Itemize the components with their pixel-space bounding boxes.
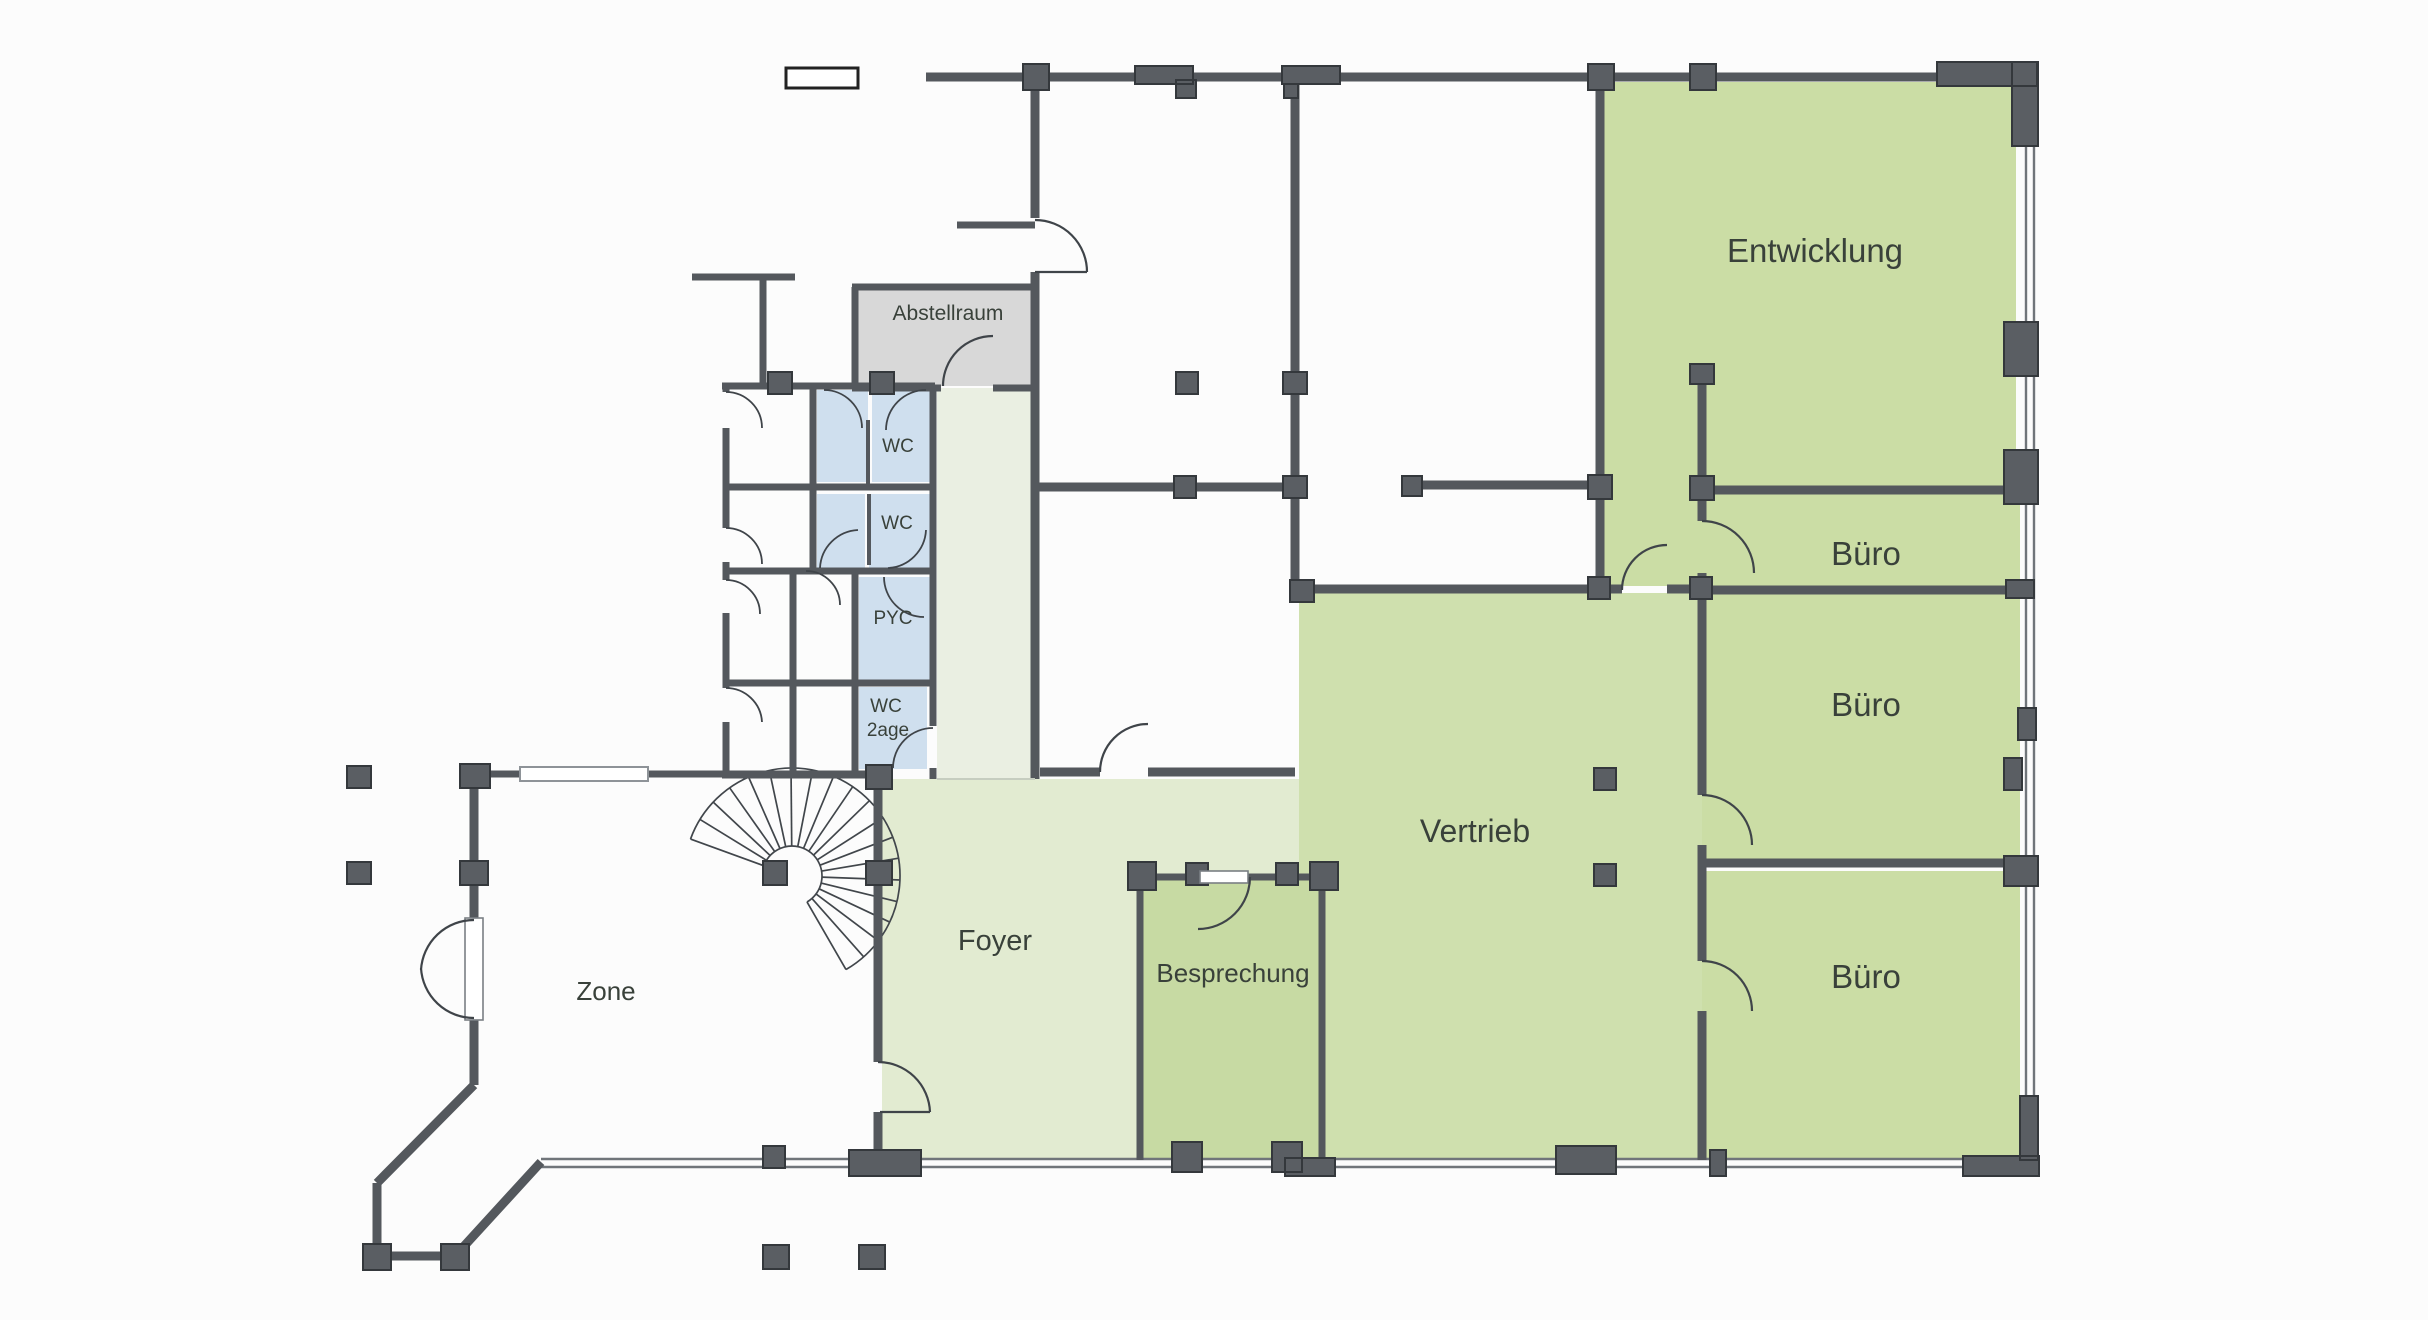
label-entwicklung: Entwicklung <box>1727 232 1903 269</box>
stair-step <box>769 770 785 846</box>
thin-cell-dividers <box>868 420 869 565</box>
floor-plan-page: Entwicklung Büro Büro Büro Vertrieb Besp… <box>0 0 2428 1320</box>
label-wc-1: WC <box>882 436 914 457</box>
label-zone: Zone <box>576 976 635 1006</box>
window-zone-top <box>520 767 648 781</box>
stair-step <box>814 801 870 855</box>
label-wc-lounge-line2: 2age <box>867 720 909 741</box>
stair-step <box>791 768 792 846</box>
label-vertrieb: Vertrieb <box>1420 813 1530 849</box>
label-buero-middle: Büro <box>1831 686 1901 723</box>
label-besprechung: Besprechung <box>1156 958 1309 988</box>
label-abstellraum: Abstellraum <box>893 302 1004 325</box>
door-leaf-zone-entrance <box>465 918 483 1020</box>
floor-plan-drawing: Entwicklung Büro Büro Büro Vertrieb Besp… <box>0 0 2428 1320</box>
room-vertrieb <box>1299 593 1702 1160</box>
label-wc-lounge-line1: WC <box>870 696 902 717</box>
label-foyer: Foyer <box>958 925 1032 957</box>
label-wc-2: WC <box>881 513 913 534</box>
label-buero-bottom: Büro <box>1831 958 1901 995</box>
room-buero-bottom <box>1702 871 2020 1160</box>
wet-cell-pyc <box>859 577 930 681</box>
window-top-left <box>786 68 858 88</box>
stair-step <box>713 802 770 855</box>
label-pyc: PYC <box>873 608 912 629</box>
corridor-strip <box>937 388 1035 779</box>
wet-cell-1 <box>817 390 868 482</box>
door-leaf-besprechung <box>1200 871 1248 883</box>
room-besprechung <box>1140 877 1322 1160</box>
wet-cell-2 <box>817 494 865 568</box>
stair-step <box>798 770 813 847</box>
room-buero-middle <box>1702 594 2020 863</box>
label-buero-top: Büro <box>1831 535 1901 572</box>
stair-step <box>812 898 864 956</box>
